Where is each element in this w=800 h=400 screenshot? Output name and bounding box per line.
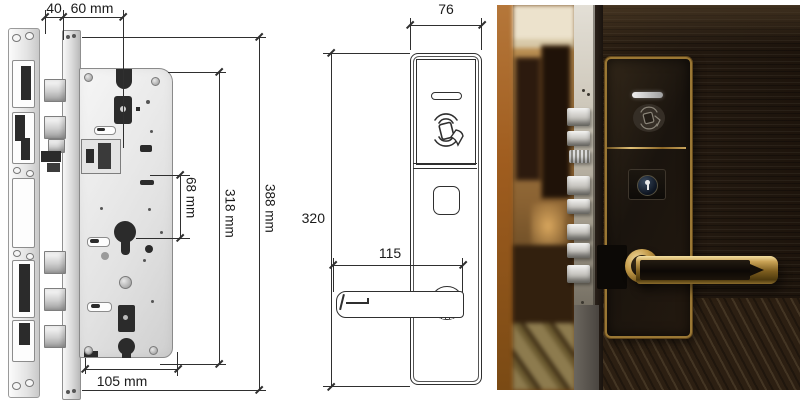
screw-hole xyxy=(12,382,21,390)
deadbolt xyxy=(44,79,66,102)
ceiling xyxy=(513,5,575,39)
door-edge-lower xyxy=(574,305,599,390)
case-screw xyxy=(151,77,160,86)
screw-hole xyxy=(13,167,21,174)
handle-base-shadow xyxy=(597,245,627,289)
door-frame-band xyxy=(497,5,513,390)
ext-line xyxy=(150,175,190,176)
dim-line-76 xyxy=(410,25,482,26)
dim-label-center-distance: 68 mm xyxy=(184,177,198,218)
extended-deadbolt xyxy=(567,224,590,240)
dim-label-faceplate-height: 388 mm xyxy=(263,184,277,233)
mechanism-dark-block xyxy=(86,149,94,163)
dim-label-case-height: 318 mm xyxy=(223,189,237,238)
extended-deadbolt xyxy=(567,131,590,146)
ext-line xyxy=(410,18,411,50)
ext-line xyxy=(323,53,410,54)
ext-line xyxy=(160,364,226,365)
ext-line xyxy=(168,72,226,73)
screw-hole xyxy=(26,170,34,177)
screw-dot xyxy=(66,35,70,39)
cylinder-hole-tail xyxy=(121,237,130,255)
deadbolt xyxy=(44,116,66,139)
key-module xyxy=(628,169,666,200)
led-indicator-slit xyxy=(431,92,462,100)
ext-line xyxy=(63,10,64,40)
rivet-dot xyxy=(150,130,153,133)
faceplate-screw-dot xyxy=(582,89,585,92)
handle-black-inlay xyxy=(640,260,750,280)
faceplate-screw-dot xyxy=(587,93,590,96)
dim-label-panel-height: 320 xyxy=(290,211,325,225)
fixing-hole xyxy=(145,245,153,253)
ext-line xyxy=(82,390,266,391)
keyhole-cover xyxy=(433,186,460,215)
screw-hole xyxy=(25,379,34,387)
rivet-dot xyxy=(143,259,146,262)
adjust-pin xyxy=(90,239,99,243)
panel-divider-line xyxy=(413,168,477,169)
adjust-pin xyxy=(97,128,105,131)
keyhole-icon xyxy=(637,175,658,196)
case-screw xyxy=(84,73,93,82)
lamp-glow xyxy=(531,203,565,249)
card-reader-icon xyxy=(426,103,468,155)
product-figure: 40 60 mm 68 mm 318 mm 388 mm 10 xyxy=(0,0,800,400)
pin-hole xyxy=(101,252,109,260)
dim-line-320 xyxy=(331,53,332,387)
screw-dot xyxy=(66,390,70,394)
dim-label-panel-width: 76 xyxy=(420,2,472,16)
bolt-through-cutout xyxy=(21,138,30,160)
rivet-dot xyxy=(146,100,150,104)
furniture xyxy=(513,245,575,325)
dim-line-388 xyxy=(259,37,260,390)
rivet-dot xyxy=(160,231,163,234)
extended-deadbolt xyxy=(567,265,590,283)
extended-deadbolt xyxy=(567,243,590,258)
ext-line xyxy=(177,352,178,376)
screw-hole xyxy=(13,250,21,257)
screw-hole xyxy=(12,34,21,42)
smart-lock-panel xyxy=(605,57,692,338)
ext-line xyxy=(481,18,482,50)
adjust-pin xyxy=(91,304,100,308)
panel-divider-line xyxy=(413,163,477,164)
extended-deadbolt xyxy=(567,199,590,214)
center-screw xyxy=(119,276,132,289)
card-reader-icon xyxy=(631,102,668,134)
ext-line xyxy=(136,238,190,239)
ext-line xyxy=(333,258,334,292)
handle-detail-tick xyxy=(367,298,369,304)
mechanism-dark-block xyxy=(98,143,111,169)
lower-slot-hole xyxy=(123,315,128,320)
extended-deadbolt xyxy=(567,176,590,195)
deadbolt xyxy=(44,325,66,348)
dim-label-case-depth: 105 mm xyxy=(77,374,167,388)
square-dot xyxy=(136,107,140,111)
keyhole-stem xyxy=(647,184,649,190)
case-screw xyxy=(149,346,158,355)
handle-tip-notch xyxy=(750,264,764,276)
latch-guard xyxy=(47,163,60,172)
ext-line xyxy=(123,10,124,148)
door-top-light xyxy=(603,5,800,45)
dim-tick xyxy=(174,365,182,373)
bottom-keyhole-tail xyxy=(122,347,131,358)
screw-hole xyxy=(26,253,34,260)
stop-pill xyxy=(140,180,154,185)
installed-lock-photo xyxy=(497,5,800,390)
screw-hole xyxy=(25,32,34,40)
carpet xyxy=(513,323,575,390)
screw-dot xyxy=(72,389,76,393)
dim-line-105 xyxy=(85,369,178,370)
rivet-dot xyxy=(148,208,151,211)
deadbolt xyxy=(44,288,66,311)
ext-line xyxy=(323,386,410,387)
bolt-through-cutout xyxy=(19,323,30,345)
strike-cutout xyxy=(12,178,35,248)
faceplate-screw-dot xyxy=(581,301,584,304)
rivet-dot xyxy=(100,207,103,210)
dim-line-115 xyxy=(333,265,463,266)
handle-lever xyxy=(336,291,464,318)
case-screw xyxy=(84,346,93,355)
latch-through-cutout xyxy=(21,66,31,100)
latch-black-bar xyxy=(41,151,61,162)
picture-frame xyxy=(515,57,541,181)
handle-detail-line xyxy=(346,302,368,304)
dim-line xyxy=(45,17,123,18)
ext-line xyxy=(45,10,46,34)
dim-line-318 xyxy=(219,72,220,364)
panel-gold-divider xyxy=(607,147,686,149)
rivet-dot xyxy=(151,300,154,303)
top-slot xyxy=(116,69,132,89)
dim-tick xyxy=(478,21,486,29)
dim-line-68 xyxy=(180,175,181,238)
ext-line xyxy=(85,358,86,374)
ext-line xyxy=(82,37,266,38)
room-background xyxy=(513,5,575,390)
stop-pill xyxy=(140,145,152,152)
bolt-through-cutout xyxy=(19,264,30,312)
dim-label-case-width: 60 mm xyxy=(64,1,120,15)
deadbolt xyxy=(44,251,66,274)
handle-lever xyxy=(636,256,778,284)
knurled-latch xyxy=(569,150,590,163)
dim-label-handle-length: 115 xyxy=(350,246,430,260)
ext-line xyxy=(462,258,463,292)
screw-dot xyxy=(72,34,76,38)
extended-deadbolt xyxy=(567,108,590,126)
led-indicator-slit xyxy=(632,92,663,98)
